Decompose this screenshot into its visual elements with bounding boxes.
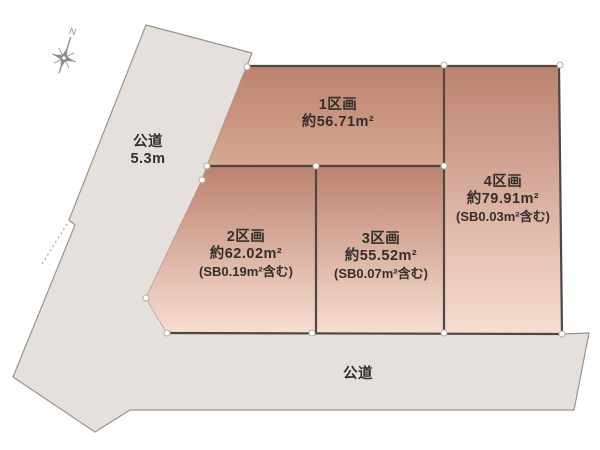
parcel-2-label: 2区画 約62.02m² (SB0.19m²含む): [199, 229, 293, 280]
parcel-3-label: 3区画 約55.52m² (SB0.07m²含む): [334, 231, 428, 282]
parcel-2-name: 2区画: [199, 229, 293, 246]
bottom-road-label: 公道: [343, 366, 373, 383]
parcel-3-name: 3区画: [334, 231, 428, 248]
lot-plan-drawing: N: [0, 0, 600, 450]
parcel-4-note: (SB0.03m²含む): [456, 208, 550, 225]
parcel-4-name: 4区画: [456, 174, 550, 191]
compass-north-label: N: [68, 26, 77, 38]
left-road-name: 公道: [130, 134, 165, 151]
parcel-1-name: 1区画: [302, 97, 375, 114]
left-road-width: 5.3m: [130, 151, 165, 168]
parcel-2-area: 約62.02m²: [199, 246, 293, 263]
parcel-1-label: 1区画 約56.71m²: [302, 97, 375, 131]
compass-icon: N: [48, 23, 86, 77]
left-road-label: 公道 5.3m: [130, 134, 165, 168]
parcel-2-note: (SB0.19m²含む): [199, 263, 293, 280]
bottom-road-name: 公道: [343, 366, 373, 383]
parcel-4-area: 約79.91m²: [456, 191, 550, 208]
parcel-1-area: 約56.71m²: [302, 114, 375, 131]
parcel-3-area: 約55.52m²: [334, 248, 428, 265]
parcel-3-note: (SB0.07m²含む): [334, 265, 428, 282]
parcel-4-label: 4区画 約79.91m² (SB0.03m²含む): [456, 174, 550, 225]
